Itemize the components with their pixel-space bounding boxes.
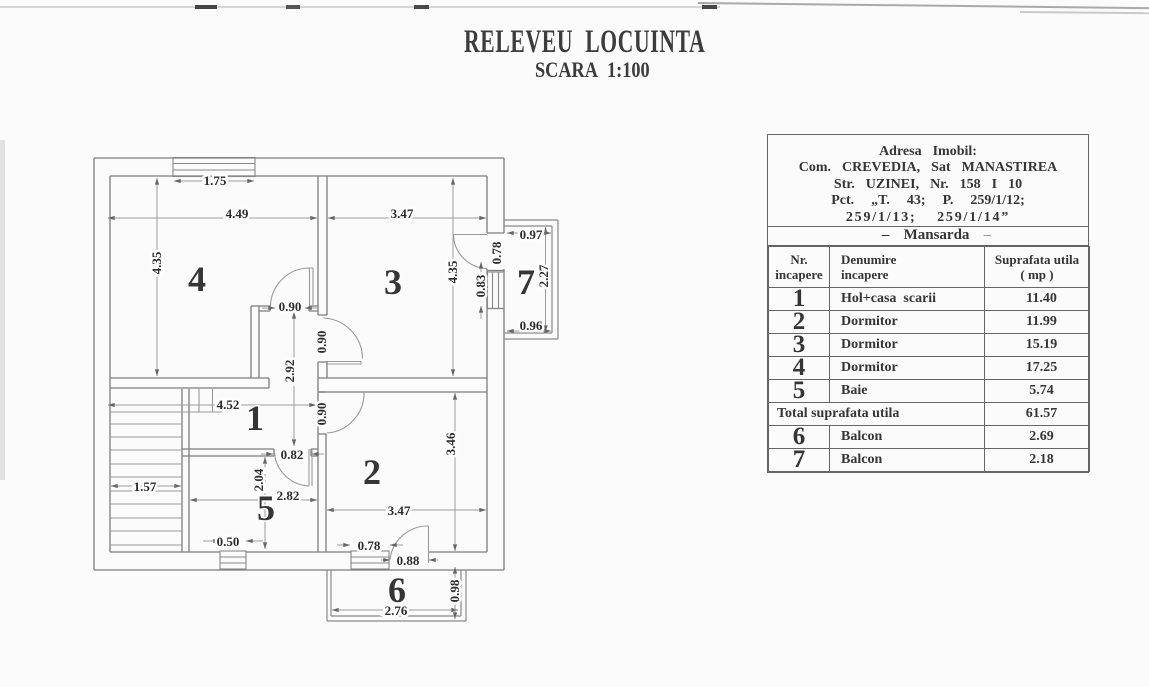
svg-text:4.35: 4.35	[149, 251, 164, 274]
svg-text:3: 3	[384, 262, 402, 302]
svg-text:2.27: 2.27	[536, 264, 551, 287]
svg-text:0.88: 0.88	[397, 553, 420, 568]
svg-text:3.47: 3.47	[391, 206, 414, 221]
svg-text:0.83: 0.83	[473, 274, 488, 297]
svg-text:0.98: 0.98	[447, 579, 462, 602]
svg-text:7: 7	[517, 262, 535, 302]
svg-text:2: 2	[363, 452, 381, 492]
svg-text:2.82: 2.82	[277, 488, 300, 503]
svg-text:1.57: 1.57	[134, 479, 157, 494]
svg-text:0.78: 0.78	[489, 241, 504, 264]
svg-text:2.92: 2.92	[282, 360, 297, 383]
svg-text:6: 6	[388, 570, 406, 610]
svg-text:4: 4	[188, 259, 206, 299]
svg-text:0.90: 0.90	[279, 299, 302, 314]
svg-text:0.90: 0.90	[314, 403, 329, 426]
svg-text:1: 1	[246, 398, 264, 438]
svg-text:0.78: 0.78	[358, 538, 381, 553]
svg-text:3.47: 3.47	[388, 503, 411, 518]
svg-text:0.96: 0.96	[520, 318, 543, 333]
svg-text:1.75: 1.75	[204, 173, 227, 188]
svg-text:4.35: 4.35	[445, 260, 460, 283]
svg-text:3.46: 3.46	[443, 432, 458, 455]
svg-text:0.97: 0.97	[520, 227, 543, 242]
svg-text:0.82: 0.82	[281, 447, 304, 462]
svg-text:4.49: 4.49	[226, 206, 249, 221]
svg-text:4.52: 4.52	[217, 397, 240, 412]
svg-text:0.90: 0.90	[314, 331, 329, 354]
svg-text:0.50: 0.50	[217, 534, 240, 549]
svg-text:5: 5	[257, 488, 275, 528]
